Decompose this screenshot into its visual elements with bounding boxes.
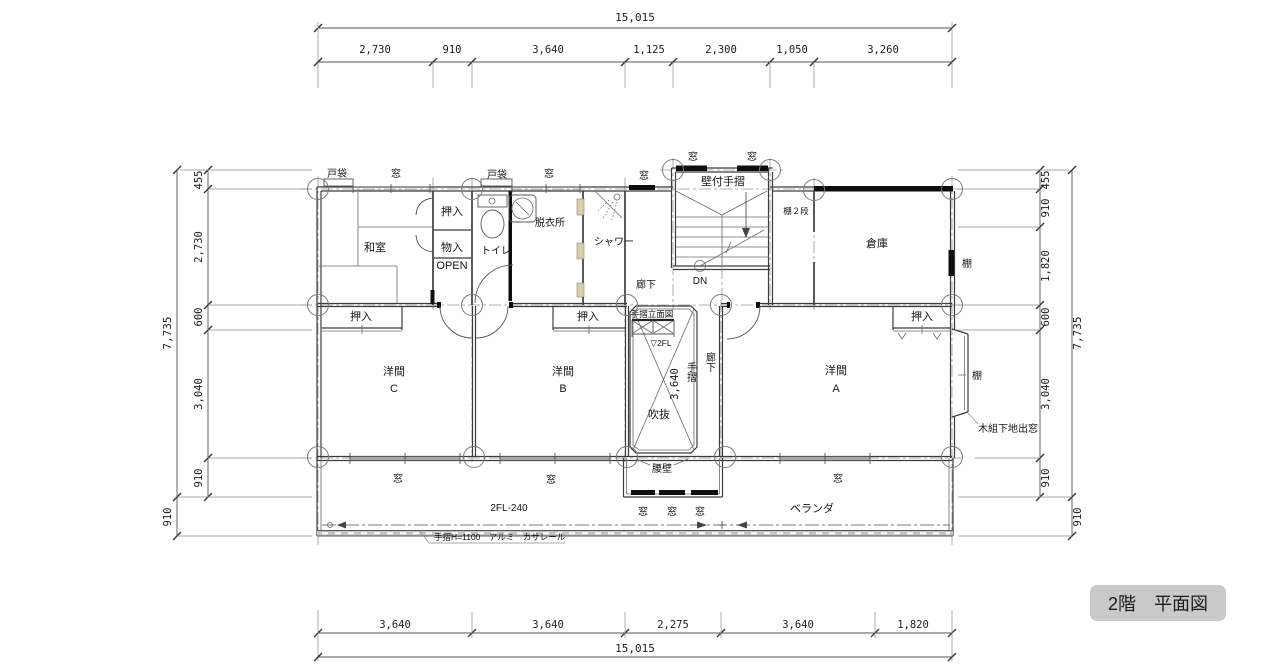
fl-level-label: 2FL-240: [490, 503, 528, 514]
dim-left-outer: 910: [162, 508, 174, 527]
dim-bottom-total: 15,015: [615, 642, 655, 655]
grid-axis-lines: [300, 158, 965, 545]
window-black-2: [676, 166, 707, 172]
bay-window-black-2: [659, 490, 685, 495]
dim-left-total: 7,735: [161, 316, 174, 349]
koshikabe-label: 腰壁: [652, 462, 672, 475]
dimension-chain-left: 455 2,730 600 3,040 910 7,735 910: [161, 166, 312, 540]
shutter-pocket-label-2: 戸袋: [487, 168, 507, 181]
window-label: 窓: [638, 505, 648, 518]
room-washitsu: 和室: [364, 240, 386, 254]
drawing-title: 2階 平面図: [1108, 594, 1208, 614]
window-black-3: [737, 166, 768, 172]
dim-right-3: 1,820: [1040, 250, 1052, 282]
floor-plan-drawing: 15,015 2,730 910 3,640 1,125 2,300 1,050…: [0, 0, 1280, 670]
dim-top-7: 3,260: [867, 44, 899, 56]
door-arc-room-c: [440, 306, 472, 338]
dim-left-5: 910: [193, 469, 205, 488]
dimension-chain-right: 455 910 1,820 600 3,040 910 7,735 910: [958, 166, 1084, 540]
window-label: 窓: [747, 150, 757, 163]
void-atrium: 手摺立面図 ▽2FL 3,640 手摺: [630, 306, 697, 453]
oshiire-label-b: 押入: [577, 309, 599, 323]
handrail-spec-label: 手摺H=1100 アルミ カサレール: [434, 532, 566, 542]
dim-left-2: 2,730: [193, 231, 205, 263]
dim-right-4: 600: [1040, 308, 1052, 327]
window-label: 窓: [544, 167, 554, 180]
bay-window-black-1: [631, 490, 655, 495]
bay-window-black-3: [691, 490, 718, 495]
corridor-label-1: 廊下: [636, 278, 656, 291]
room-youma-b-letter: B: [559, 383, 566, 395]
room-youma-b: 洋間: [552, 364, 574, 378]
dim-right-5: 3,040: [1040, 378, 1052, 410]
window-label: 窓: [546, 473, 556, 486]
window-label: 窓: [695, 505, 705, 518]
room-youma-c-letter: C: [390, 383, 398, 395]
room-youma-a: 洋間: [825, 363, 847, 377]
mononyu-label: 物入: [441, 240, 463, 254]
door-arc-room-a: [727, 306, 760, 339]
handrail-arrow-left2: [737, 522, 747, 529]
room-veranda: ベランダ: [790, 501, 834, 515]
dim-bot-5: 1,820: [897, 619, 929, 631]
door-arc-oshiire-1: [416, 198, 433, 215]
room-youma-a-letter: A: [832, 383, 840, 395]
handrail-label: 手摺: [685, 361, 697, 383]
title-block: 2階 平面図: [1090, 585, 1226, 621]
dim-right-2: 910: [1040, 199, 1052, 218]
closet-mark: [898, 333, 906, 339]
dim-top-5: 2,300: [705, 44, 737, 56]
window-label: 窓: [639, 169, 649, 182]
door-arc-oshiire-2: [416, 235, 433, 252]
oshiire-label-top: 押入: [441, 204, 463, 218]
floor-plan-page: 15,015 2,730 910 3,640 1,125 2,300 1,050…: [0, 0, 1280, 670]
dim-top-total: 15,015: [615, 11, 655, 24]
shower-head: [614, 194, 620, 200]
dim-right-6: 910: [1040, 469, 1052, 488]
veranda: [317, 458, 953, 543]
wall-handrail-label: 壁付手摺: [701, 174, 745, 188]
dim-top-1: 2,730: [359, 44, 391, 56]
dim-left-1: 455: [193, 171, 205, 190]
door-arc-toilet: [475, 265, 513, 303]
handrail-arrow-right: [697, 522, 707, 529]
window-label: 窓: [391, 167, 401, 180]
dim-bot-4: 3,640: [782, 619, 814, 631]
dimension-chain-bottom: 3,640 3,640 2,275 3,640 1,820 15,015: [314, 610, 956, 661]
shelf-2tier-label: 棚２段: [783, 206, 809, 216]
room-souko: 倉庫: [866, 236, 888, 250]
dim-top-4: 1,125: [633, 44, 665, 56]
corridor-label-2: 廊下: [704, 351, 716, 373]
room-youma-c: 洋間: [383, 364, 405, 378]
window-label: 窓: [833, 472, 843, 485]
shelf-label-1: 棚: [962, 257, 972, 270]
window-label: 窓: [688, 150, 698, 163]
dim-bot-3: 2,275: [657, 619, 689, 631]
bath-door-panel: [577, 199, 584, 215]
room-shower: シャワー: [594, 237, 634, 248]
shelf-label-2: 棚: [972, 369, 982, 382]
handrail-arrow-left: [337, 522, 346, 529]
dim-left-4: 3,040: [193, 378, 205, 410]
bath-door-panel: [577, 243, 584, 259]
toilet-bowl: [481, 210, 504, 238]
dn-label: DN: [693, 276, 707, 287]
dim-left-3: 600: [193, 308, 205, 327]
window-black-1: [629, 185, 655, 190]
window-label: 窓: [667, 505, 677, 518]
room-datsuijo: 脱衣所: [535, 216, 565, 229]
shutter-pocket-1: [324, 179, 353, 186]
window-label: 窓: [393, 472, 403, 485]
room-toilet: トイレ: [481, 246, 511, 257]
dim-right-total: 7,735: [1071, 316, 1084, 349]
closet-mark: [933, 333, 941, 339]
dim-top-2: 910: [443, 44, 462, 56]
open-label: OPEN: [436, 260, 467, 272]
bay-window-note: 木組下地出窓: [978, 422, 1038, 435]
dim-top-3: 3,640: [532, 44, 564, 56]
stair-down-arrow: [742, 228, 750, 238]
handrail-elevation-label: 手摺立面図: [631, 309, 674, 319]
dim-right-1: 455: [1040, 171, 1052, 190]
toilet-button: [489, 198, 495, 204]
oshiire-label-a: 押入: [911, 309, 933, 323]
open-wall-end: [431, 290, 435, 304]
dimension-chain-top: 15,015 2,730 910 3,640 1,125 2,300 1,050…: [314, 11, 956, 88]
shutter-pocket-label-1: 戸袋: [327, 167, 347, 180]
dim-right-outer: 910: [1072, 508, 1084, 527]
room-fukinuke: 吹抜: [648, 407, 670, 421]
storage-heavy-wall: [814, 186, 953, 192]
dim-top-6: 1,050: [776, 44, 808, 56]
fl2-marker: ▽2FL: [650, 338, 671, 348]
window-black-storage: [949, 250, 955, 276]
bath-door-panel: [577, 283, 584, 297]
toilet-tank: [478, 195, 507, 207]
dim-bot-1: 3,640: [379, 619, 411, 631]
oshiire-label-c: 押入: [350, 309, 372, 323]
void-dim: 3,640: [669, 368, 681, 400]
dim-bot-2: 3,640: [532, 619, 564, 631]
staircase: [676, 191, 769, 300]
